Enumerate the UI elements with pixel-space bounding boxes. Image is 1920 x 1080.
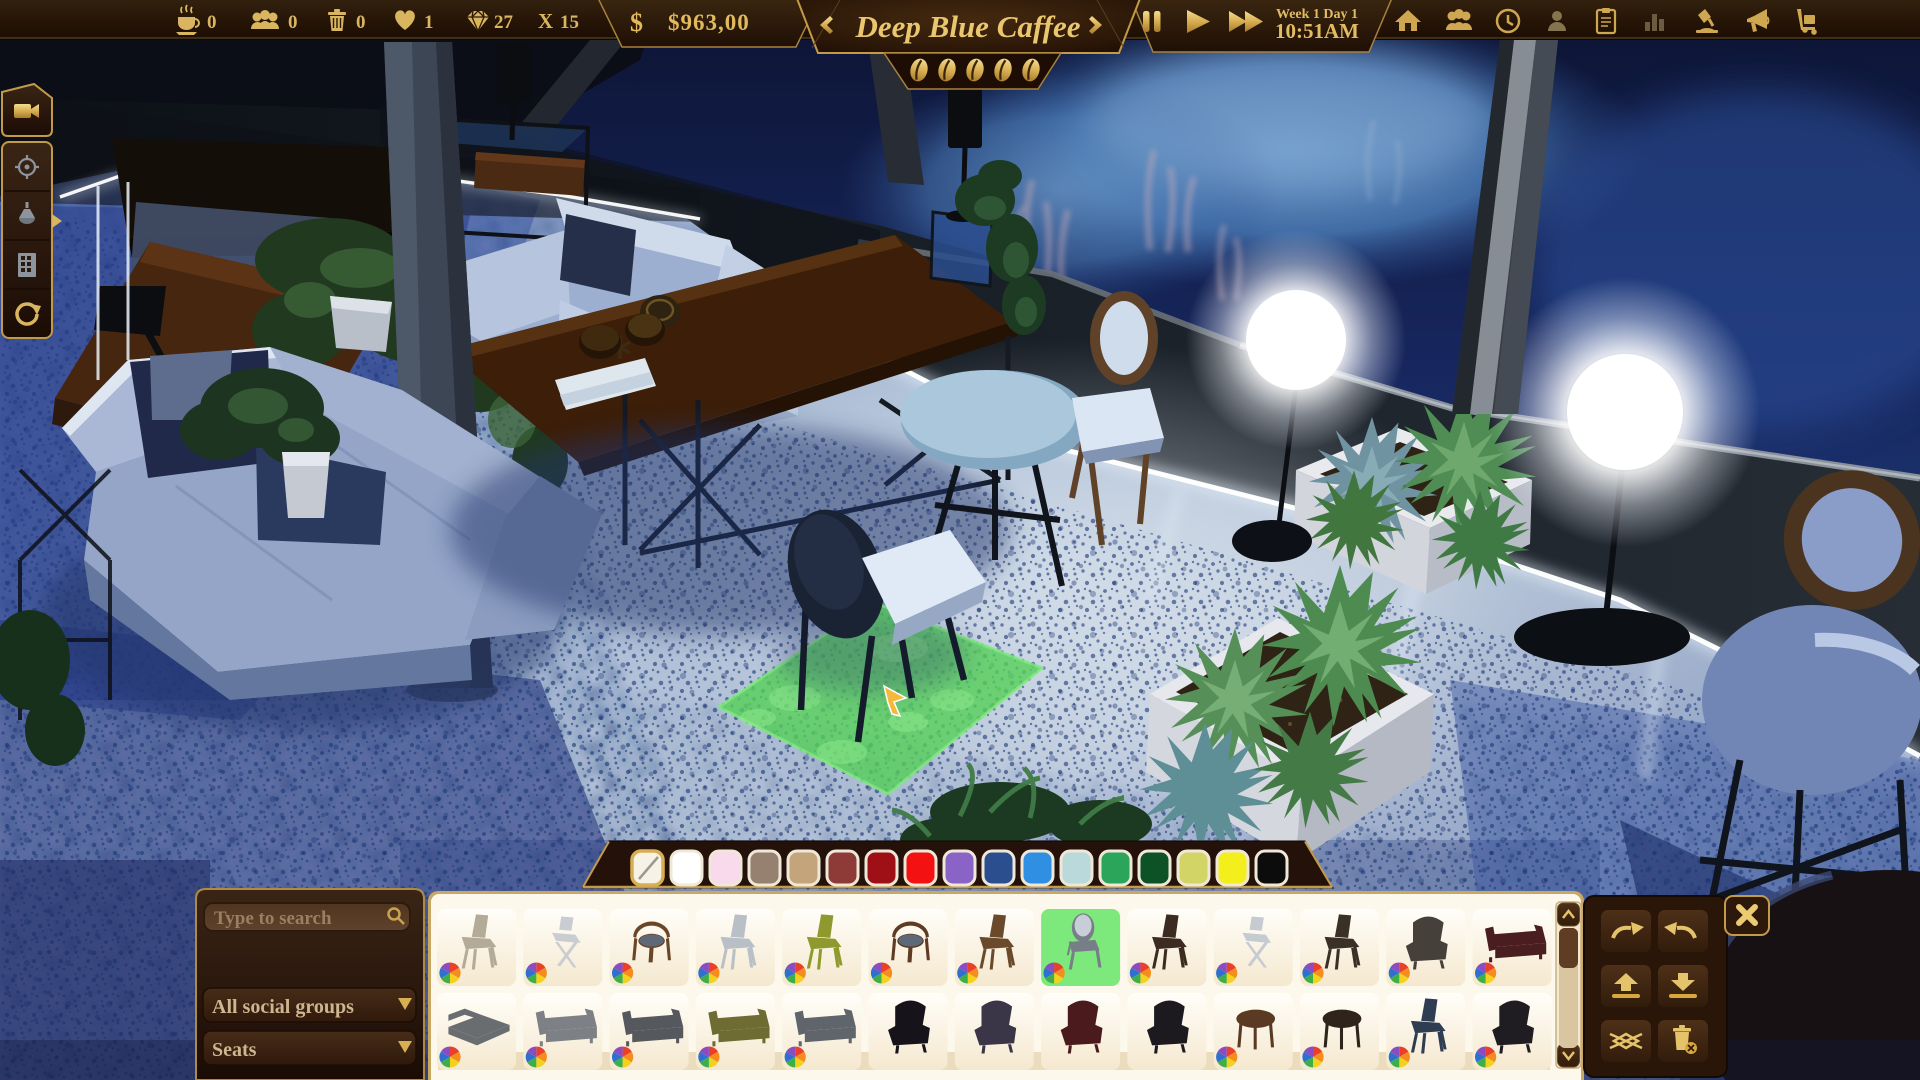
svg-text:0: 0 bbox=[288, 12, 298, 33]
svg-text:$963,00: $963,00 bbox=[668, 10, 750, 35]
svg-text:X: X bbox=[538, 9, 553, 33]
svg-text:Seats: Seats bbox=[212, 1039, 257, 1061]
svg-text:$: $ bbox=[630, 8, 643, 37]
svg-text:15: 15 bbox=[560, 12, 579, 33]
svg-text:Type to search: Type to search bbox=[214, 908, 332, 929]
svg-text:Deep Blue Caffee: Deep Blue Caffee bbox=[855, 9, 1081, 44]
svg-text:1: 1 bbox=[424, 12, 434, 33]
svg-text:27: 27 bbox=[494, 12, 514, 33]
svg-text:10:51AM: 10:51AM bbox=[1275, 19, 1359, 43]
svg-text:0: 0 bbox=[207, 12, 217, 33]
svg-text:0: 0 bbox=[356, 12, 366, 33]
svg-text:All social groups: All social groups bbox=[212, 996, 354, 1018]
